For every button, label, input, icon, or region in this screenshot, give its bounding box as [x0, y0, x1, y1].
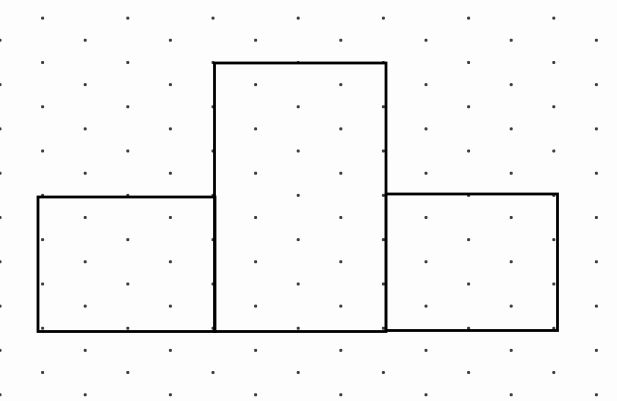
- grid-dot: [41, 282, 44, 285]
- grid-dot: [467, 105, 470, 108]
- grid-dot: [339, 260, 342, 263]
- grid-dot: [254, 260, 257, 263]
- grid-dot: [254, 83, 257, 86]
- grid-dot: [510, 260, 513, 263]
- grid-dot: [41, 61, 44, 64]
- grid-dot: [254, 305, 257, 308]
- grid-dot: [382, 105, 385, 108]
- grid-dot: [339, 39, 342, 42]
- grid-dot: [552, 17, 555, 20]
- dot-grid-figure: [0, 0, 617, 401]
- grid-dot: [510, 39, 513, 42]
- grid-dot: [212, 371, 215, 374]
- grid-dot: [595, 83, 598, 86]
- grid-dot: [169, 83, 172, 86]
- grid-dot: [339, 83, 342, 86]
- grid-dot: [84, 39, 87, 42]
- grid-dot: [552, 150, 555, 153]
- grid-dot: [169, 260, 172, 263]
- grid-dot: [467, 282, 470, 285]
- grid-dot: [467, 150, 470, 153]
- grid-dot: [169, 393, 172, 396]
- grid-dot: [552, 61, 555, 64]
- grid-dot: [126, 61, 129, 64]
- grid-dot: [339, 216, 342, 219]
- grid-dot: [425, 305, 428, 308]
- grid-dot: [467, 371, 470, 374]
- grid-dot: [169, 127, 172, 130]
- grid-dot: [382, 327, 385, 330]
- grid-dot: [339, 349, 342, 352]
- grid-dot: [84, 305, 87, 308]
- grid-dot: [382, 282, 385, 285]
- grid-dot: [339, 172, 342, 175]
- grid-dot: [339, 393, 342, 396]
- grid-dot: [425, 260, 428, 263]
- grid-dot: [425, 172, 428, 175]
- grid-dot: [84, 127, 87, 130]
- grid-dot: [297, 371, 300, 374]
- grid-dot: [382, 17, 385, 20]
- grid-dot: [297, 105, 300, 108]
- grid-dot: [0, 260, 2, 263]
- grid-dot: [425, 127, 428, 130]
- grid-dot: [126, 238, 129, 241]
- paper-background: [0, 0, 617, 401]
- grid-dot: [0, 393, 2, 396]
- grid-dot: [41, 17, 44, 20]
- grid-dot: [254, 39, 257, 42]
- grid-dot: [339, 127, 342, 130]
- grid-dot: [254, 393, 257, 396]
- grid-dot: [126, 150, 129, 153]
- grid-dot: [126, 371, 129, 374]
- grid-dot: [467, 238, 470, 241]
- grid-dot: [84, 83, 87, 86]
- grid-dot: [84, 172, 87, 175]
- grid-dot: [84, 216, 87, 219]
- grid-dot: [467, 17, 470, 20]
- grid-dot: [169, 216, 172, 219]
- grid-dot: [382, 371, 385, 374]
- grid-dot: [297, 282, 300, 285]
- grid-dot: [595, 260, 598, 263]
- dot-paper-canvas: [0, 0, 617, 401]
- grid-dot: [41, 371, 44, 374]
- grid-dot: [0, 216, 2, 219]
- grid-dot: [425, 216, 428, 219]
- grid-dot: [510, 83, 513, 86]
- grid-dot: [41, 238, 44, 241]
- grid-dot: [0, 305, 2, 308]
- grid-dot: [510, 393, 513, 396]
- grid-dot: [169, 305, 172, 308]
- grid-dot: [126, 105, 129, 108]
- grid-dot: [382, 194, 385, 197]
- grid-dot: [595, 39, 598, 42]
- grid-dot: [297, 327, 300, 330]
- grid-dot: [425, 349, 428, 352]
- grid-dot: [0, 172, 2, 175]
- grid-dot: [41, 327, 44, 330]
- grid-dot: [84, 393, 87, 396]
- grid-dot: [339, 305, 342, 308]
- grid-dot: [425, 393, 428, 396]
- grid-dot: [510, 127, 513, 130]
- grid-dot: [84, 260, 87, 263]
- grid-dot: [382, 238, 385, 241]
- grid-dot: [169, 349, 172, 352]
- grid-dot: [595, 127, 598, 130]
- grid-dot: [425, 83, 428, 86]
- grid-dot: [254, 349, 257, 352]
- grid-dot: [126, 327, 129, 330]
- grid-dot: [297, 194, 300, 197]
- grid-dot: [126, 282, 129, 285]
- grid-dot: [510, 216, 513, 219]
- grid-dot: [0, 83, 2, 86]
- grid-dot: [595, 393, 598, 396]
- grid-dot: [169, 172, 172, 175]
- grid-dot: [41, 150, 44, 153]
- grid-dot: [0, 39, 2, 42]
- grid-dot: [297, 150, 300, 153]
- grid-dot: [510, 172, 513, 175]
- grid-dot: [510, 349, 513, 352]
- grid-dot: [595, 172, 598, 175]
- grid-dot: [552, 371, 555, 374]
- grid-dot: [254, 216, 257, 219]
- grid-dot: [595, 216, 598, 219]
- grid-dot: [0, 349, 2, 352]
- grid-dot: [510, 305, 513, 308]
- grid-dot: [595, 349, 598, 352]
- grid-dot: [467, 61, 470, 64]
- grid-dot: [212, 17, 215, 20]
- grid-dot: [254, 172, 257, 175]
- grid-dot: [297, 17, 300, 20]
- grid-dot: [126, 17, 129, 20]
- grid-dot: [41, 105, 44, 108]
- grid-dot: [552, 105, 555, 108]
- grid-dot: [595, 305, 598, 308]
- grid-dot: [425, 39, 428, 42]
- grid-dot: [382, 150, 385, 153]
- grid-dot: [169, 39, 172, 42]
- grid-dot: [0, 127, 2, 130]
- grid-dot: [297, 238, 300, 241]
- grid-dot: [552, 238, 555, 241]
- grid-dot: [254, 127, 257, 130]
- grid-dot: [84, 349, 87, 352]
- grid-dot: [552, 282, 555, 285]
